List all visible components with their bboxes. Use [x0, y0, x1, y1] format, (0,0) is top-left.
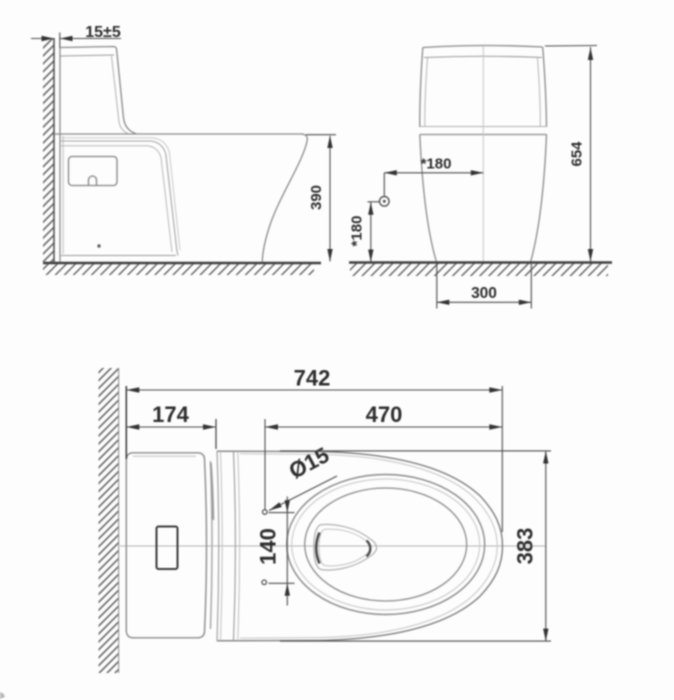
svg-text:*180: *180	[421, 156, 452, 173]
svg-text:300: 300	[471, 285, 497, 302]
svg-text:470: 470	[366, 402, 403, 427]
svg-text:140: 140	[256, 528, 281, 565]
svg-text:742: 742	[294, 366, 331, 391]
svg-text:Ø15: Ø15	[285, 442, 333, 484]
svg-text:390: 390	[308, 185, 325, 210]
svg-text:174: 174	[152, 402, 189, 427]
svg-text:654: 654	[569, 141, 586, 167]
svg-text:*180: *180	[349, 216, 366, 247]
svg-text:383: 383	[513, 528, 538, 565]
svg-text:15±5: 15±5	[85, 24, 121, 41]
